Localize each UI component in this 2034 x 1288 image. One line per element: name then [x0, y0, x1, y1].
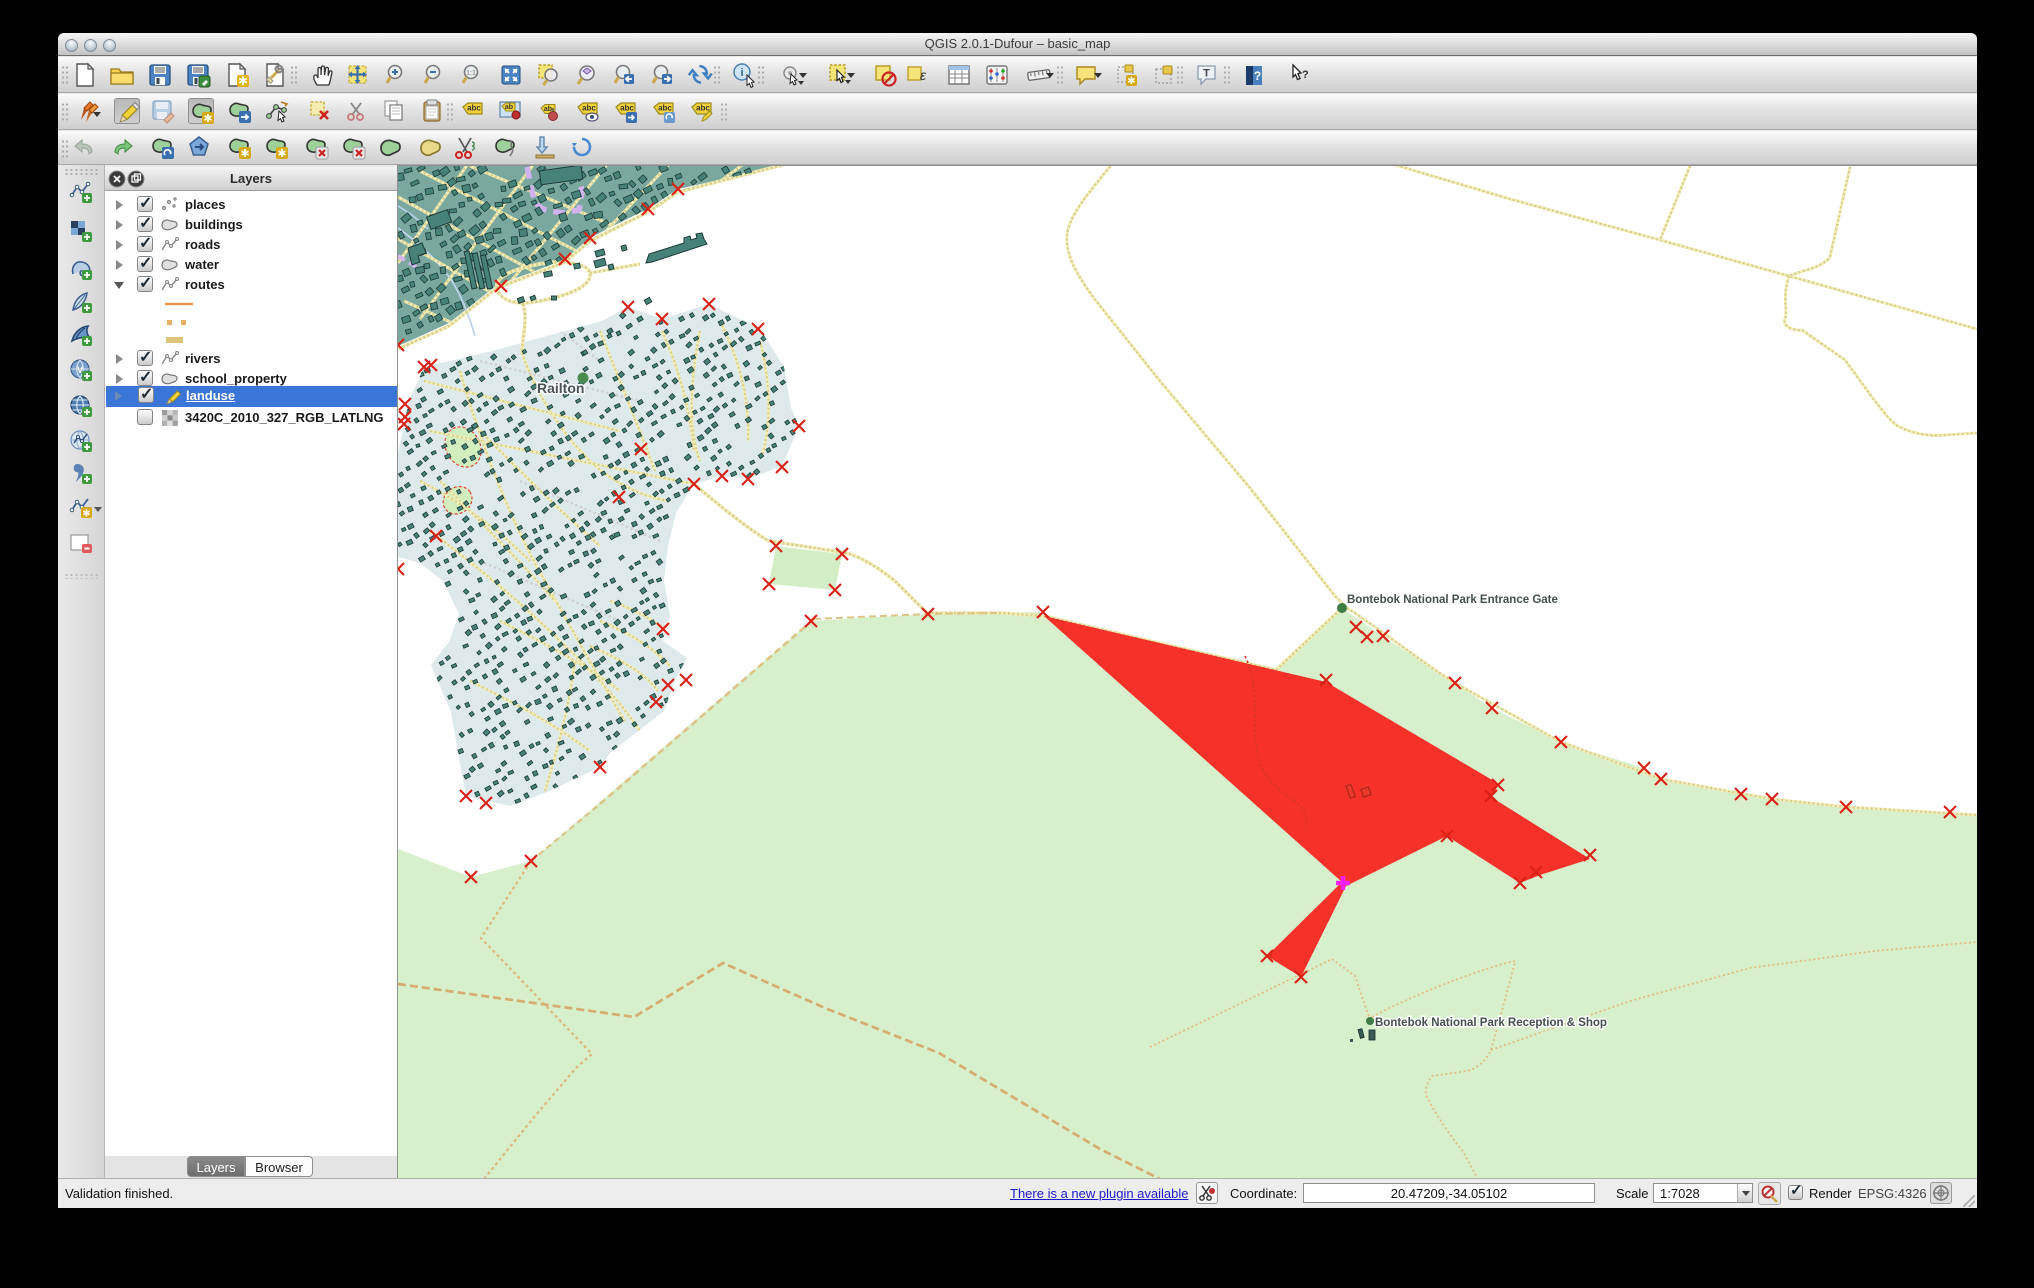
svg-text:✱: ✱	[238, 74, 248, 88]
svg-text:T: T	[1203, 68, 1210, 80]
svg-text:i: i	[740, 67, 743, 79]
svg-text:ab: ab	[505, 104, 513, 111]
svg-text:ε: ε	[920, 67, 927, 83]
svg-text:1:1: 1:1	[466, 70, 476, 77]
svg-text:abc: abc	[467, 104, 481, 113]
svg-text:abc: abc	[696, 104, 710, 113]
svg-text:abc: abc	[620, 104, 634, 113]
svg-text:?: ?	[1302, 69, 1309, 81]
svg-text:Layers: Layers	[230, 171, 272, 186]
svg-text:✱: ✱	[1127, 76, 1135, 87]
svg-text:?: ?	[1254, 69, 1261, 83]
svg-text:abc: abc	[658, 104, 672, 113]
svg-text:Bontebok National Park Recepti: Bontebok National Park Reception & Shop	[1375, 1017, 1607, 1029]
svg-text:✱: ✱	[240, 148, 249, 160]
svg-text:✱: ✱	[203, 113, 212, 125]
svg-text:✱: ✱	[277, 148, 286, 160]
svg-text:Bontebok National Park Entranc: Bontebok National Park Entrance Gate	[1347, 594, 1558, 606]
svg-text:✱: ✱	[82, 509, 90, 520]
svg-text:Railton: Railton	[537, 380, 584, 396]
svg-text:abc: abc	[582, 104, 596, 113]
